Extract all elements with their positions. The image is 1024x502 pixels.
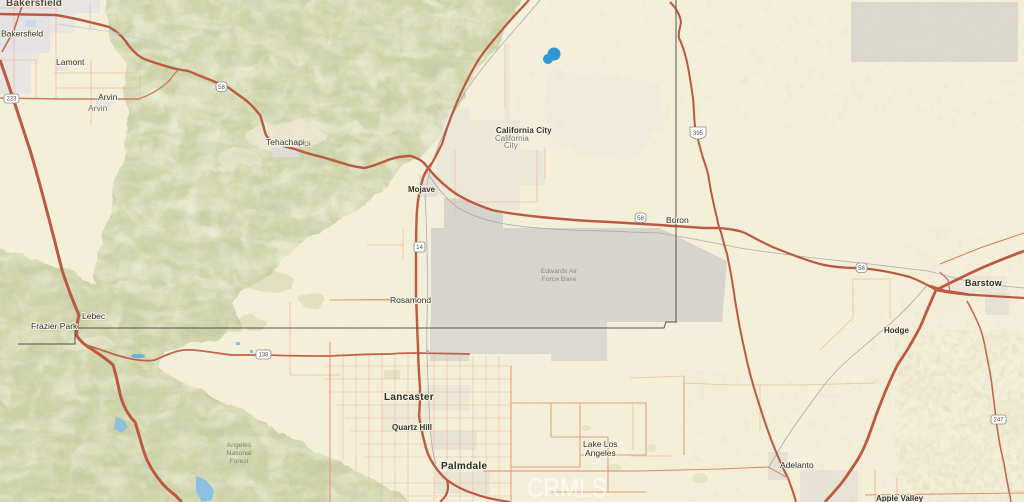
svg-text:Palmdale: Palmdale xyxy=(441,461,487,472)
svg-text:395: 395 xyxy=(693,131,704,137)
svg-text:Force Base: Force Base xyxy=(542,276,577,283)
svg-text:Frazier Park: Frazier Park xyxy=(31,321,78,331)
svg-text:Bakersfield: Bakersfield xyxy=(1,29,43,39)
svg-text:Hodge: Hodge xyxy=(884,326,909,335)
svg-text:Rosamond: Rosamond xyxy=(390,295,431,305)
svg-text:247: 247 xyxy=(993,418,1004,424)
svg-text:138: 138 xyxy=(258,353,269,359)
svg-text:58: 58 xyxy=(637,216,644,222)
svg-text:Tehachapi: Tehachapi xyxy=(266,137,305,147)
svg-text:Mojave: Mojave xyxy=(408,185,436,194)
svg-text:Quartz Hill: Quartz Hill xyxy=(392,423,432,432)
svg-text:Bakersfield: Bakersfield xyxy=(6,0,62,9)
svg-text:CRMLS: CRMLS xyxy=(527,473,607,502)
svg-text:National: National xyxy=(227,450,252,457)
svg-text:Lebec: Lebec xyxy=(82,311,106,321)
svg-text:Lancaster: Lancaster xyxy=(384,392,434,403)
svg-text:Apple Valley: Apple Valley xyxy=(876,494,924,502)
svg-text:Edwards Air: Edwards Air xyxy=(541,268,578,275)
svg-text:Barstow: Barstow xyxy=(965,278,1003,288)
svg-text:City: City xyxy=(504,141,518,150)
svg-text:223: 223 xyxy=(6,97,17,103)
svg-text:Boron: Boron xyxy=(666,215,689,225)
svg-text:Arvin: Arvin xyxy=(88,103,108,113)
svg-text:58: 58 xyxy=(858,266,865,272)
svg-text:Arvin: Arvin xyxy=(98,92,118,102)
svg-text:Angeles: Angeles xyxy=(227,442,252,449)
svg-text:58: 58 xyxy=(218,85,225,91)
svg-text:Adelanto: Adelanto xyxy=(780,460,814,470)
svg-text:Forest: Forest xyxy=(229,458,248,465)
svg-text:14: 14 xyxy=(416,245,423,251)
svg-text:Angeles: Angeles xyxy=(585,448,616,458)
svg-text:Lamont: Lamont xyxy=(56,57,85,67)
